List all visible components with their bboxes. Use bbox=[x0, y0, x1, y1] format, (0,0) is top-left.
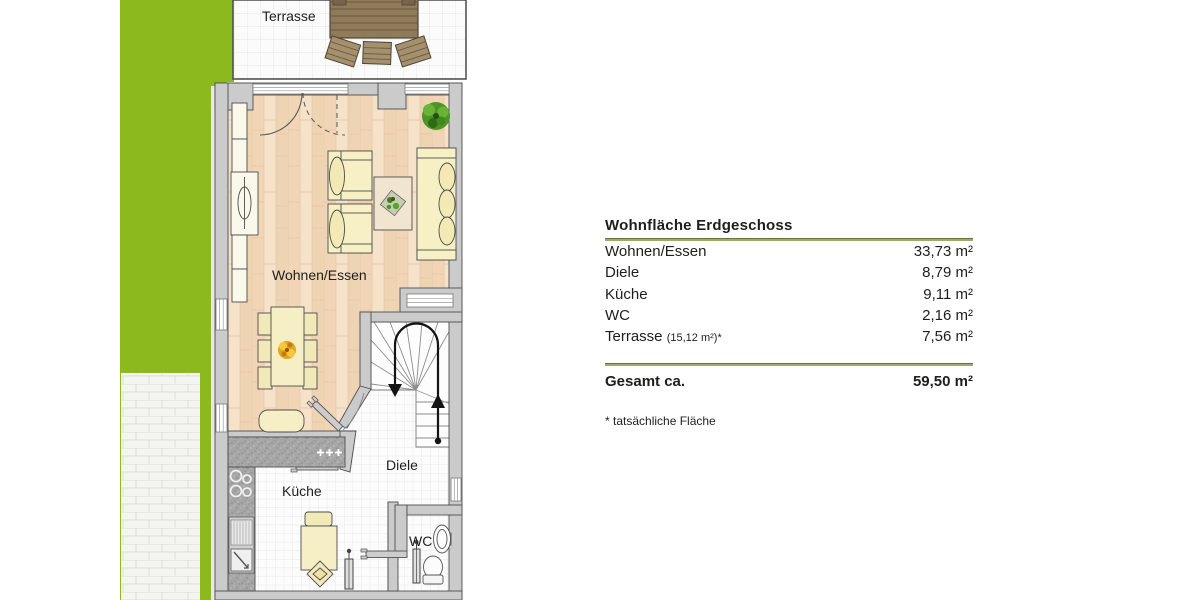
coffee-table-icon bbox=[374, 177, 412, 230]
area-table: Wohnfläche Erdgeschoss Wohnen/Essen 33,7… bbox=[605, 217, 973, 428]
area-row: Wohnen/Essen 33,73 m² bbox=[605, 241, 973, 262]
dishwasher-marks bbox=[317, 449, 342, 456]
area-row-value: 7,56 m² bbox=[922, 326, 973, 347]
terrace-door-window bbox=[253, 84, 348, 94]
area-row-value: 2,16 m² bbox=[922, 305, 973, 326]
divider bbox=[605, 363, 973, 366]
area-row-note: (15,12 m²)* bbox=[667, 332, 722, 344]
paver-patio bbox=[121, 373, 200, 600]
area-table-title: Wohnfläche Erdgeschoss bbox=[605, 217, 973, 238]
room-label-diele: Diele bbox=[386, 457, 418, 473]
area-footnote: * tatsächliche Fläche bbox=[605, 414, 973, 428]
corner-plant-icon bbox=[422, 102, 450, 130]
floorplan-page: Terrasse Wohnen/Essen Diele Küche WC Woh… bbox=[0, 0, 1200, 600]
area-row: Diele 8,79 m² bbox=[605, 262, 973, 283]
area-row-label: WC bbox=[605, 305, 630, 326]
area-total-value: 59,50 m² bbox=[913, 371, 973, 392]
left-window bbox=[216, 299, 227, 330]
area-row-value: 33,73 m² bbox=[914, 241, 973, 262]
floorplan-drawing bbox=[0, 0, 1200, 600]
area-row-label: Küche bbox=[605, 284, 648, 305]
top-window bbox=[405, 84, 449, 94]
armchair-icon bbox=[328, 204, 372, 253]
wall-outer-face bbox=[211, 86, 215, 600]
left-window bbox=[216, 404, 227, 432]
table-flowers-icon bbox=[278, 341, 296, 359]
right-window bbox=[451, 478, 461, 501]
area-total-row: Gesamt ca. 59,50 m² bbox=[605, 371, 973, 392]
room-label-wohnen-essen: Wohnen/Essen bbox=[272, 267, 367, 283]
area-row: Terrasse (15,12 m²)* 7,56 m² bbox=[605, 326, 973, 349]
sink-icon bbox=[229, 517, 254, 573]
area-row-label: Diele bbox=[605, 262, 639, 283]
area-row-label: Wohnen/Essen bbox=[605, 241, 706, 262]
stairwell-window bbox=[407, 294, 453, 307]
room-label-terrasse: Terrasse bbox=[262, 8, 316, 24]
area-row-label: Terrasse (15,12 m²)* bbox=[605, 326, 722, 349]
armchair-icon bbox=[328, 151, 372, 200]
area-row-value: 9,11 m² bbox=[923, 284, 973, 305]
room-label-wc: WC bbox=[409, 533, 432, 549]
area-row: WC 2,16 m² bbox=[605, 305, 973, 326]
area-total-label: Gesamt ca. bbox=[605, 371, 685, 392]
bench-icon bbox=[259, 410, 304, 432]
terrace-chair-icon bbox=[363, 42, 392, 65]
area-row: Küche 9,11 m² bbox=[605, 284, 973, 305]
room-label-kueche: Küche bbox=[282, 483, 322, 499]
terrace-table-icon bbox=[330, 0, 418, 38]
area-row-value: 8,79 m² bbox=[922, 262, 973, 283]
sofa-icon bbox=[417, 148, 456, 260]
